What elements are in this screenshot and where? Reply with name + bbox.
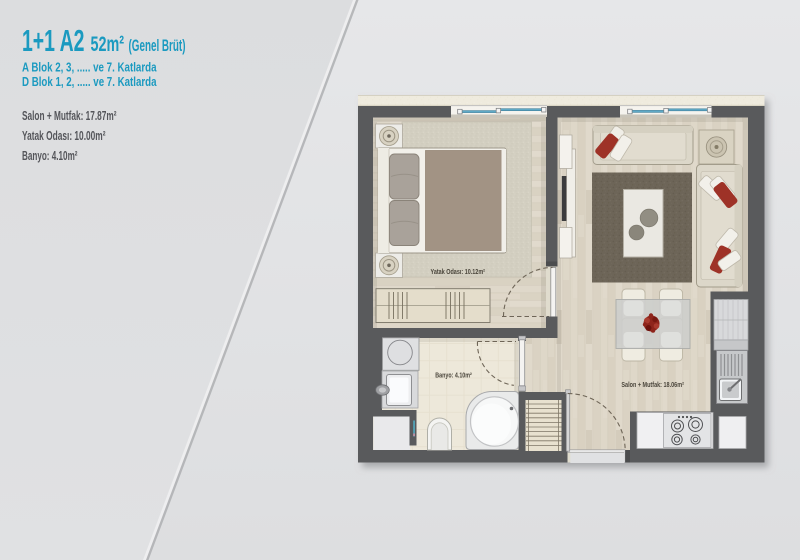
svg-text:1+1 A2: 1+1 A2 <box>22 23 85 58</box>
svg-text:Yatak Odası: 10.00m²: Yatak Odası: 10.00m² <box>22 129 106 143</box>
svg-text:Salon + Mutfak: 18.06m²: Salon + Mutfak: 18.06m² <box>621 380 684 389</box>
svg-text:Banyo: 4.10m²: Banyo: 4.10m² <box>435 370 472 379</box>
svg-text:Salon + Mutfak: 17.87m²: Salon + Mutfak: 17.87m² <box>22 109 117 123</box>
svg-text:52m²: 52m² <box>91 32 125 56</box>
svg-text:Yatak Odası: 10.12m²: Yatak Odası: 10.12m² <box>431 267 486 276</box>
svg-text:D Blok 1, 2, ..... ve 7. Katla: D Blok 1, 2, ..... ve 7. Katlarda <box>22 75 157 89</box>
svg-text:A Blok 2, 3, ..... ve 7. Katla: A Blok 2, 3, ..... ve 7. Katlarda <box>22 61 157 75</box>
svg-text:Banyo: 4.10m²: Banyo: 4.10m² <box>22 149 78 163</box>
svg-text:(Genel Brüt): (Genel Brüt) <box>129 37 186 55</box>
